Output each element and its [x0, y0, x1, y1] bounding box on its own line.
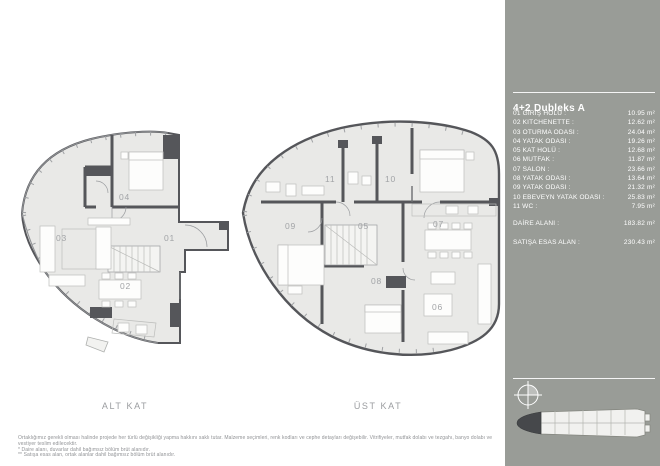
room-name: 10 EBEVEYN YATAK ODASI :	[513, 193, 605, 202]
room-row: 03 OTURMA ODASI :24.04 m²	[513, 128, 655, 137]
bed-icon	[365, 305, 401, 333]
room-area: 12.68 m²	[628, 146, 655, 155]
room-row: 07 SALON :23.66 m²	[513, 165, 655, 174]
room-label-06: 06	[432, 302, 443, 312]
room-area: 11.87 m²	[628, 155, 655, 164]
room-name: 08 YATAK ODASI :	[513, 174, 571, 183]
room-area: 13.64 m²	[628, 174, 655, 183]
panel-bottom-art	[511, 380, 657, 460]
room-label-10: 10	[385, 174, 396, 184]
room-area: 12.62 m²	[628, 118, 655, 127]
room-name: 11 WC :	[513, 202, 537, 211]
room-name: 09 YATAK ODASI :	[513, 183, 571, 192]
room-row: 04 YATAK ODASI :19.26 m²	[513, 137, 655, 146]
compass-icon	[514, 381, 542, 409]
room-label-09: 09	[285, 221, 296, 231]
room-label-04: 04	[119, 192, 130, 202]
room-area: 19.26 m²	[628, 137, 655, 146]
room-label-05: 05	[358, 221, 369, 231]
total-value: 230.43 m²	[624, 238, 655, 247]
room-area: 23.66 m²	[628, 165, 655, 174]
floorplan-sheet: 04 03 01 02	[0, 0, 660, 466]
room-name: 05 KAT HOLÜ :	[513, 146, 560, 155]
disclaimer-line: Ortaklığımız gerekli olması halinde proj…	[18, 436, 495, 448]
room-row: 09 YATAK ODASI :21.32 m²	[513, 183, 655, 192]
room-area: 24.04 m²	[628, 128, 655, 137]
stairs-icon	[325, 225, 377, 265]
room-label-02: 02	[120, 281, 131, 291]
room-name: 07 SALON :	[513, 165, 550, 174]
room-row: 10 EBEVEYN YATAK ODASI :25.83 m²	[513, 193, 655, 202]
ust-kat-floorplan: 09 11 10 05 07 08 06	[236, 114, 506, 364]
room-name: 06 MUTFAK :	[513, 155, 554, 164]
room-row: 11 WC :7.95 m²	[513, 202, 655, 211]
panel-divider-bottom	[513, 378, 655, 379]
room-label-01: 01	[164, 233, 175, 243]
total-value: 183.82 m²	[624, 219, 655, 228]
room-name: 02 KITCHENETTE :	[513, 118, 574, 127]
total-label: DAİRE ALANI :	[513, 219, 559, 228]
room-name: 01 GİRİŞ HOLÜ :	[513, 109, 566, 118]
room-row: 05 KAT HOLÜ :12.68 m²	[513, 146, 655, 155]
room-row: 06 MUTFAK :11.87 m²	[513, 155, 655, 164]
room-label-03: 03	[56, 233, 67, 243]
room-area: 7.95 m²	[632, 202, 655, 211]
room-area-list: 01 GİRİŞ HOLÜ :10.95 m² 02 KITCHENETTE :…	[513, 109, 655, 211]
key-plan	[517, 409, 650, 437]
total-satisa-esas-alan: SATIŞA ESAS ALAN : 230.43 m²	[513, 238, 655, 247]
room-area: 21.32 m²	[628, 183, 655, 192]
room-label-08: 08	[371, 276, 382, 286]
room-area: 25.83 m²	[628, 193, 655, 202]
ust-kat-caption: ÜST KAT	[333, 401, 423, 411]
balcony	[86, 337, 108, 352]
room-row: 01 GİRİŞ HOLÜ :10.95 m²	[513, 109, 655, 118]
panel-divider-top	[513, 92, 655, 93]
room-row: 08 YATAK ODASI :13.64 m²	[513, 174, 655, 183]
info-panel: 4+2 Dubleks A 01 GİRİŞ HOLÜ :10.95 m² 02…	[505, 0, 660, 466]
stairs-icon	[108, 246, 160, 272]
room-label-11: 11	[325, 174, 335, 184]
room-area: 10.95 m²	[628, 109, 655, 118]
disclaimer-line: ** Satışa esas alan, ortak alanlar dahil…	[18, 453, 495, 459]
total-label: SATIŞA ESAS ALAN :	[513, 238, 580, 247]
room-label-07: 07	[433, 219, 444, 229]
disclaimer: Ortaklığımız gerekli olması halinde proj…	[18, 436, 495, 459]
room-row: 02 KITCHENETTE :12.62 m²	[513, 118, 655, 127]
total-daire-alani: DAİRE ALANI : 183.82 m²	[513, 219, 655, 228]
highlighted-unit	[517, 412, 541, 434]
room-name: 03 OTURMA ODASI :	[513, 128, 579, 137]
alt-kat-floorplan: 04 03 01 02	[16, 123, 234, 353]
alt-kat-caption: ALT KAT	[80, 401, 170, 411]
room-name: 04 YATAK ODASI :	[513, 137, 571, 146]
